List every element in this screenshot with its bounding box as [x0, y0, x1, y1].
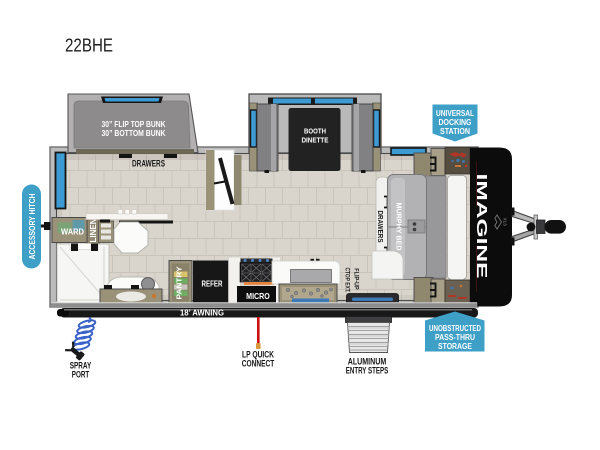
- svg-text:LINEN: LINEN: [89, 218, 98, 242]
- svg-text:DINETTE: DINETTE: [302, 136, 329, 145]
- svg-text:MICRO: MICRO: [246, 291, 270, 301]
- svg-text:IMAGINE: IMAGINE: [473, 174, 489, 280]
- svg-text:ENTRY STEPS: ENTRY STEPS: [346, 366, 389, 376]
- svg-text:DRAWERS: DRAWERS: [132, 159, 165, 169]
- svg-text:PORT: PORT: [72, 370, 90, 380]
- svg-text:DOCKING: DOCKING: [439, 118, 472, 127]
- svg-text:ACCESSORY HITCH: ACCESSORY HITCH: [28, 193, 37, 259]
- svg-text:XLS: XLS: [503, 218, 508, 226]
- svg-text:UNIVERSAL: UNIVERSAL: [436, 109, 474, 118]
- svg-text:REFER: REFER: [202, 278, 223, 288]
- svg-text:STATION: STATION: [440, 127, 470, 136]
- svg-text:MURPHY BED: MURPHY BED: [395, 203, 404, 252]
- svg-text:BOOTH: BOOTH: [304, 127, 326, 136]
- svg-text:22BHE: 22BHE: [65, 35, 113, 56]
- svg-text:CONNECT: CONNECT: [242, 359, 275, 369]
- svg-text:PASS-THRU: PASS-THRU: [435, 333, 475, 342]
- svg-text:30” BOTTOM BUNK: 30” BOTTOM BUNK: [102, 129, 166, 138]
- svg-text:DRAWERS: DRAWERS: [376, 211, 385, 243]
- svg-text:18’ AWNING: 18’ AWNING: [180, 308, 224, 317]
- svg-text:WARD: WARD: [61, 228, 84, 237]
- svg-text:CTOP EXT.: CTOP EXT.: [344, 268, 351, 293]
- svg-text:FLIP-UP: FLIP-UP: [352, 268, 359, 290]
- svg-text:UNOBSTRUCTED: UNOBSTRUCTED: [429, 324, 481, 333]
- svg-text:30” FLIP TOP BUNK: 30” FLIP TOP BUNK: [102, 120, 166, 129]
- svg-text:STORAGE: STORAGE: [438, 342, 473, 351]
- svg-text:PANTRY: PANTRY: [175, 266, 184, 299]
